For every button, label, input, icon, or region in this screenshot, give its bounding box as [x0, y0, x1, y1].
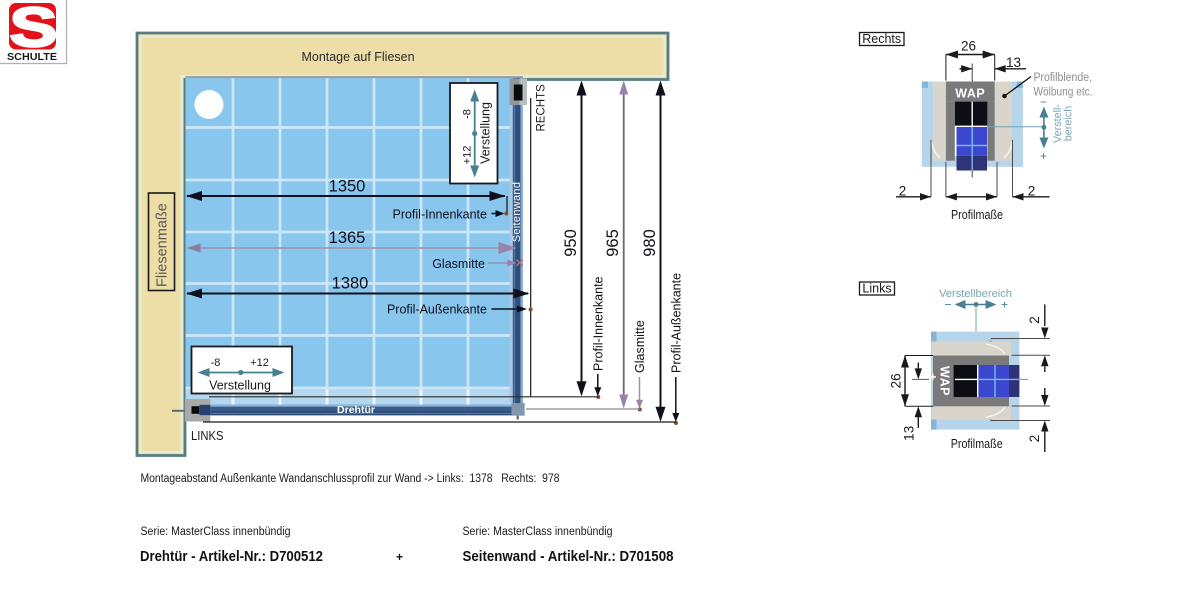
svg-text:+: + — [1040, 149, 1047, 163]
svg-text:13: 13 — [902, 426, 917, 441]
svg-text:950: 950 — [562, 229, 580, 257]
svg-text:Profilblende,: Profilblende, — [1034, 70, 1093, 84]
svg-text:Profil-Innenkante: Profil-Innenkante — [591, 276, 605, 371]
svg-text:Drehtür - Artikel-Nr.: D700512: Drehtür - Artikel-Nr.: D700512 — [140, 549, 323, 565]
svg-text:-8: -8 — [211, 357, 221, 369]
svg-text:S: S — [10, 0, 58, 58]
svg-text:Montage auf Fliesen: Montage auf Fliesen — [302, 49, 415, 64]
svg-text:Drehtür: Drehtür — [337, 404, 375, 416]
svg-text:Serie: MasterClass innenbündig: Serie: MasterClass innenbündig — [141, 526, 291, 538]
svg-text:Glasmitte: Glasmitte — [633, 320, 647, 373]
svg-text:Profilmaße: Profilmaße — [951, 207, 1003, 222]
svg-text:26: 26 — [961, 39, 976, 54]
svg-text:−: − — [1040, 95, 1047, 109]
svg-text:bereich: bereich — [1063, 106, 1075, 141]
svg-text:Seitenwand - Artikel-Nr.: D701: Seitenwand - Artikel-Nr.: D701508 — [463, 549, 674, 565]
svg-text:2: 2 — [1027, 316, 1042, 324]
svg-text:Verstellung: Verstellung — [479, 102, 493, 164]
svg-text:Serie: MasterClass innenbündig: Serie: MasterClass innenbündig — [463, 526, 613, 538]
svg-text:2: 2 — [899, 184, 907, 199]
svg-text:LINKS: LINKS — [191, 429, 224, 443]
svg-text:+12: +12 — [250, 357, 269, 369]
svg-text:965: 965 — [604, 229, 622, 257]
svg-text:Profilmaße: Profilmaße — [951, 436, 1003, 451]
svg-text:SCHULTE: SCHULTE — [7, 51, 57, 63]
svg-text:Profil-Außenkante: Profil-Außenkante — [387, 303, 487, 317]
svg-text:1380: 1380 — [332, 275, 369, 293]
svg-text:26: 26 — [889, 373, 904, 388]
svg-text:WAP: WAP — [938, 366, 952, 396]
svg-text:2: 2 — [1028, 184, 1036, 199]
svg-text:Fliesenmaße: Fliesenmaße — [155, 203, 171, 287]
svg-text:−: − — [944, 298, 951, 312]
svg-text:Links: Links — [862, 282, 891, 296]
svg-text:980: 980 — [641, 229, 659, 257]
svg-text:WAP: WAP — [955, 87, 985, 101]
svg-text:2: 2 — [1027, 435, 1042, 443]
svg-text:1350: 1350 — [329, 178, 366, 196]
svg-text:1365: 1365 — [329, 229, 366, 247]
svg-text:+: + — [396, 550, 403, 564]
svg-text:+12: +12 — [462, 146, 474, 165]
svg-text:13: 13 — [1006, 55, 1021, 70]
svg-text:Profil-Außenkante: Profil-Außenkante — [670, 273, 684, 373]
svg-text:Montageabstand Außenkante Wand: Montageabstand Außenkante Wandanschlussp… — [141, 473, 560, 485]
svg-text:Verstellung: Verstellung — [209, 379, 271, 393]
svg-text:+: + — [1001, 298, 1008, 312]
svg-text:Glasmitte: Glasmitte — [432, 257, 485, 271]
svg-text:-8: -8 — [462, 109, 474, 119]
svg-text:Profil-Innenkante: Profil-Innenkante — [392, 208, 487, 222]
svg-text:Rechts: Rechts — [862, 32, 901, 46]
svg-text:RECHTS: RECHTS — [536, 84, 548, 132]
svg-text:Seitenwand: Seitenwand — [511, 182, 523, 243]
